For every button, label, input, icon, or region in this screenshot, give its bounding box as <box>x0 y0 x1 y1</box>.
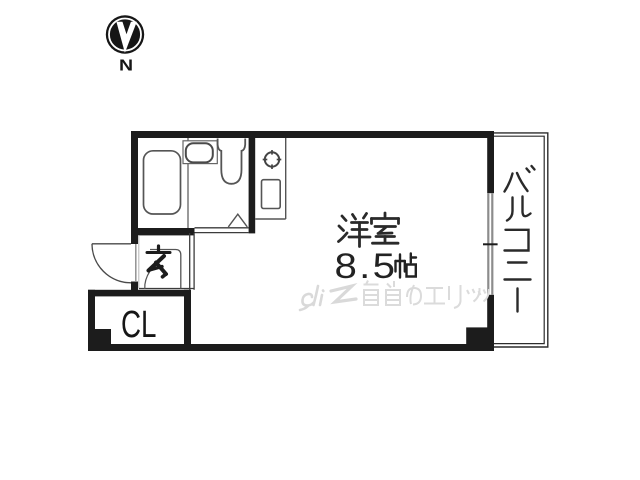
svg-text:N: N <box>119 56 133 74</box>
svg-text:8.5: 8.5 <box>335 246 398 285</box>
svg-text:CL: CL <box>121 304 156 346</box>
